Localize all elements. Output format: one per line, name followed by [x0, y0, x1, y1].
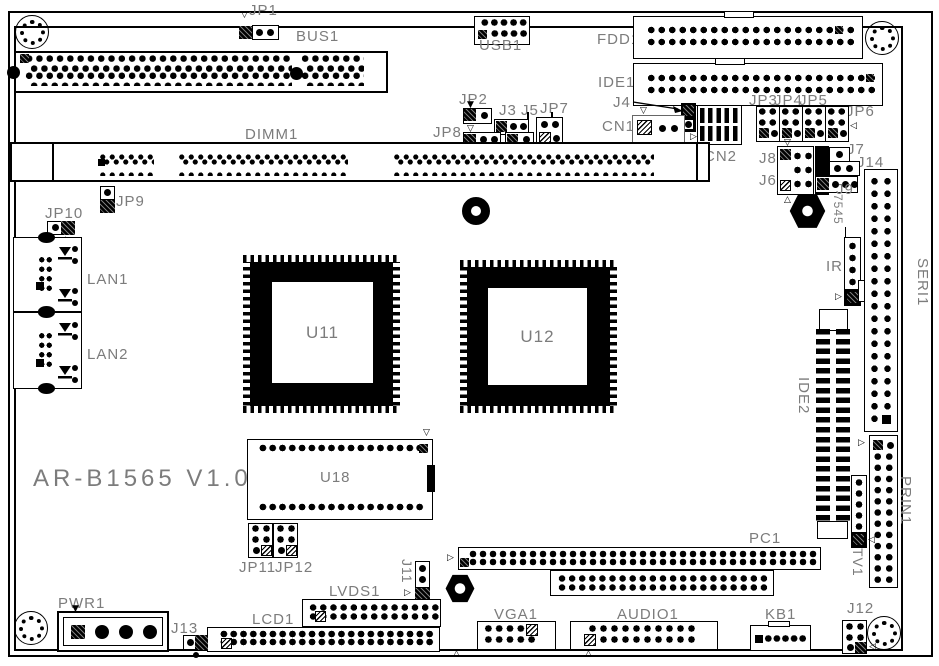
pin1-square [755, 635, 763, 643]
pin-array [102, 157, 154, 167]
label-ide1: IDE1 [598, 75, 635, 90]
connector-cn1 [632, 115, 685, 144]
pin1-square [460, 558, 469, 567]
chip-tab [427, 465, 435, 492]
pin [95, 625, 109, 639]
jumper-j13-pin2 [195, 635, 208, 650]
connector-notch [715, 58, 745, 65]
key-hole [7, 66, 20, 79]
label-j12: J12 [847, 601, 874, 616]
pin [187, 639, 194, 646]
pin-array [598, 635, 697, 645]
pin-array [792, 149, 814, 191]
pin-array [764, 634, 807, 644]
pin1-square [873, 440, 883, 450]
jumper-jp2 [463, 108, 492, 124]
pin [278, 547, 285, 554]
pin-array [219, 630, 435, 646]
connector-pwr1 [57, 611, 169, 652]
pin1-square [584, 634, 596, 646]
label-lan2: LAN2 [87, 347, 129, 362]
pin [481, 112, 488, 119]
pin-array [308, 603, 441, 621]
label-kb1: KB1 [765, 607, 796, 622]
pin [834, 165, 841, 172]
label-jp9: JP9 [116, 194, 145, 209]
pin-array [483, 624, 526, 634]
pin [253, 547, 260, 554]
jumper-jp4 [779, 106, 803, 142]
tv1-marker-icon: ◁ [868, 536, 875, 545]
label-j3: J3 [499, 103, 517, 118]
led-icon [56, 244, 78, 271]
label-7545: 7545 [832, 194, 844, 225]
pin-array [483, 635, 537, 645]
pin [256, 29, 263, 36]
jp6-marker-icon: ◁ [850, 122, 857, 131]
label-j4: J4 [613, 95, 631, 110]
vga1-marker-icon: △ [453, 650, 460, 659]
mounting-hole-top-left [15, 15, 49, 49]
label-u12: U12 [520, 328, 554, 345]
label-jp10: JP10 [45, 206, 83, 221]
pin-array [480, 17, 528, 28]
label-jp8: JP8 [433, 125, 462, 140]
chip-u12: U12 [460, 260, 617, 413]
label-jp7: JP7 [540, 101, 569, 116]
label-u18: U18 [320, 470, 351, 485]
socket-divider [696, 144, 698, 180]
jumper-jp9-pin2 [100, 200, 115, 213]
contact-bars [700, 108, 740, 123]
pin1-square [419, 444, 428, 453]
pin-array [826, 106, 847, 128]
pin [671, 125, 678, 132]
chip-u18: U18 [247, 439, 433, 520]
pin-array [275, 523, 297, 545]
pin [119, 625, 133, 639]
connector-lvds1 [302, 599, 441, 627]
pin-array [258, 502, 424, 512]
pin [771, 130, 778, 137]
jumper-jp6 [825, 106, 849, 142]
jp1-pin1-marker-icon: ▽ [241, 11, 248, 20]
led-icon [56, 286, 78, 313]
label-j14: J14 [857, 155, 884, 170]
label-j6: J6 [759, 173, 777, 188]
pin1-square [98, 159, 105, 166]
pin [685, 121, 692, 128]
connector-pc1 [458, 547, 821, 570]
pin [267, 29, 274, 36]
pin-array [557, 574, 769, 592]
label-lan1: LAN1 [87, 272, 129, 287]
audio1-marker-icon: △ [585, 650, 592, 659]
pin1-square [496, 121, 507, 132]
pin1-square [782, 128, 792, 138]
pin-array [872, 451, 895, 585]
jumper-jp1-pin1 [239, 26, 252, 39]
pin-array [587, 624, 697, 634]
led-icon [56, 320, 78, 347]
label-ide2: IDE2 [796, 377, 811, 414]
label-jp12: JP12 [275, 560, 313, 575]
connector-kb1 [750, 625, 811, 651]
connector-tv1 [851, 475, 867, 533]
key-hole [290, 67, 303, 80]
j4-arrow [630, 97, 688, 115]
pin [520, 123, 527, 130]
pin-array [396, 157, 653, 167]
board-diagram: ▽ JP1 BUS1 USB1 FDD1 IDE1 JP2 ▼ J3 J5 [0, 0, 939, 666]
seri1-tab [858, 280, 865, 302]
label-tv1: TV1 [851, 548, 865, 577]
label-bus1: BUS1 [296, 29, 339, 44]
key-oval [38, 307, 55, 318]
connector-bus1 [14, 51, 388, 93]
pin1-square [315, 611, 326, 622]
key-oval [38, 232, 55, 243]
led-icon [56, 363, 78, 390]
jumper-jp9 [100, 186, 115, 200]
pin1-square [805, 128, 815, 138]
label-jp6: JP6 [846, 104, 875, 119]
label-j8: J8 [759, 151, 777, 166]
ir1-marker-icon: ▷ [835, 293, 842, 302]
connector-ide2-pads [816, 329, 830, 524]
pin1-square [20, 54, 29, 63]
pin1-square [866, 74, 874, 82]
connector-notch [768, 621, 790, 627]
pin-array [855, 477, 863, 532]
pin-array [305, 60, 364, 86]
mounting-hole-bottom-left [14, 611, 48, 645]
jumper-jp12 [273, 523, 298, 558]
pin-array [844, 621, 866, 643]
pin1-square [817, 178, 829, 190]
j11-marker-icon: ▷ [404, 589, 411, 598]
pin [541, 121, 548, 128]
pin-array [181, 157, 348, 167]
pin [52, 224, 59, 231]
jumper-jp1 [252, 25, 279, 40]
pin-array [780, 106, 801, 128]
pin [553, 135, 560, 142]
connector-fdd1 [633, 16, 863, 59]
label-cn1: CN1 [602, 119, 635, 134]
pin1-square [261, 545, 272, 556]
pin1-square [637, 120, 652, 135]
pin-array [803, 106, 824, 128]
label-prin1: PRIN1 [898, 476, 913, 525]
label-pwr1: PWR1 [58, 596, 105, 611]
label-j5: J5 [521, 103, 539, 118]
pin [510, 123, 517, 130]
jumper-jp3 [756, 106, 780, 142]
label-dimm1: DIMM1 [245, 127, 298, 142]
label-jp1: JP1 [249, 3, 278, 18]
label-vga1: VGA1 [494, 607, 538, 622]
j12-marker-icon: ◁ [869, 643, 876, 652]
j6-marker-icon: △ [784, 196, 791, 205]
pin-array [868, 175, 894, 425]
pin [419, 576, 426, 583]
pin [846, 165, 853, 172]
connector-vga1 [477, 621, 556, 650]
connector-pc1-lower [550, 570, 774, 596]
label-pc1: PC1 [749, 531, 781, 546]
pin1-square [828, 128, 838, 138]
pin [419, 565, 426, 572]
pin1-square [835, 26, 843, 34]
pin [817, 130, 824, 137]
prin1-marker-icon: ▷ [858, 439, 865, 448]
jumper-jp10-pin2 [61, 221, 75, 235]
connector-tv1-pin1 [851, 532, 867, 548]
label-audio1: AUDIO1 [617, 607, 679, 622]
contact-bars [700, 126, 740, 141]
pin-array [29, 60, 292, 86]
mounting-hole-top-right [865, 21, 899, 55]
pin [794, 130, 801, 137]
pin1-square [464, 109, 476, 121]
pin1-square [286, 545, 297, 556]
connector-dimm1 [10, 142, 710, 182]
pin [104, 189, 111, 196]
jumper-j14 [829, 161, 860, 176]
label-j13: J13 [171, 621, 198, 636]
jumper-j12 [842, 620, 867, 654]
pin1-square-j6 [780, 180, 791, 191]
chip-die: U11 [272, 282, 373, 383]
connector-seri1 [864, 169, 898, 432]
pin [143, 625, 157, 639]
chip-u11: U11 [243, 255, 400, 413]
connector-audio1 [570, 621, 718, 650]
pin [847, 644, 854, 651]
socket-divider [52, 144, 54, 180]
jumper-j11 [415, 561, 430, 588]
pin-array [757, 106, 778, 128]
ide2-bracket-bottom [817, 521, 848, 539]
u18-marker-icon: ▽ [423, 429, 430, 438]
via-dot [193, 652, 199, 658]
connector-lan2 [13, 312, 82, 389]
pin [836, 151, 843, 158]
mounting-hole-center-left [462, 197, 490, 225]
ide2-bracket-top [819, 309, 848, 331]
chip-die: U12 [488, 288, 587, 385]
connector-notch [724, 11, 754, 18]
pin-array [250, 523, 272, 545]
pin1-square [36, 282, 44, 290]
jumper-jp5 [802, 106, 826, 142]
cn2-marker-icon: ▷ [690, 133, 697, 142]
connector-ide2-pads [836, 329, 850, 524]
board-inner-edge-right [901, 26, 903, 651]
label-jp11: JP11 [239, 560, 276, 575]
pin-last-square [882, 415, 891, 424]
pin [840, 130, 847, 137]
label-u11: U11 [306, 324, 339, 341]
key-oval [38, 383, 55, 394]
pin1-square [855, 642, 866, 653]
pin1-square [853, 534, 864, 545]
component-cn2 [697, 105, 742, 145]
pin1-square [36, 359, 44, 367]
pin-array [848, 240, 857, 288]
jumper-jp11 [248, 523, 273, 558]
jumper-j8-j6 [777, 146, 814, 195]
pin-array [468, 550, 818, 566]
pin-array [258, 443, 424, 453]
pin [887, 442, 894, 449]
pin [659, 125, 666, 132]
pin1-square [759, 128, 769, 138]
label-board-title: AR-B1565 V1.0 [33, 467, 252, 491]
pin1-square [847, 292, 858, 303]
pin [552, 121, 559, 128]
connector-lan1 [13, 237, 82, 312]
pin1-square-j8 [780, 149, 791, 160]
label-seri1: SERI1 [915, 258, 930, 306]
label-usb1: USB1 [479, 38, 522, 53]
pin-array [646, 24, 856, 48]
label-lcd1: LCD1 [252, 612, 294, 627]
connector-lcd1 [207, 627, 440, 652]
connector-prin1 [869, 435, 898, 588]
pin1-square [71, 625, 85, 639]
label-lvds1: LVDS1 [329, 584, 380, 599]
jumper-j7 [829, 147, 850, 162]
pc1-marker-icon: ▷ [447, 554, 454, 563]
pin1-square [221, 638, 232, 649]
label-j11: J11 [400, 559, 414, 584]
